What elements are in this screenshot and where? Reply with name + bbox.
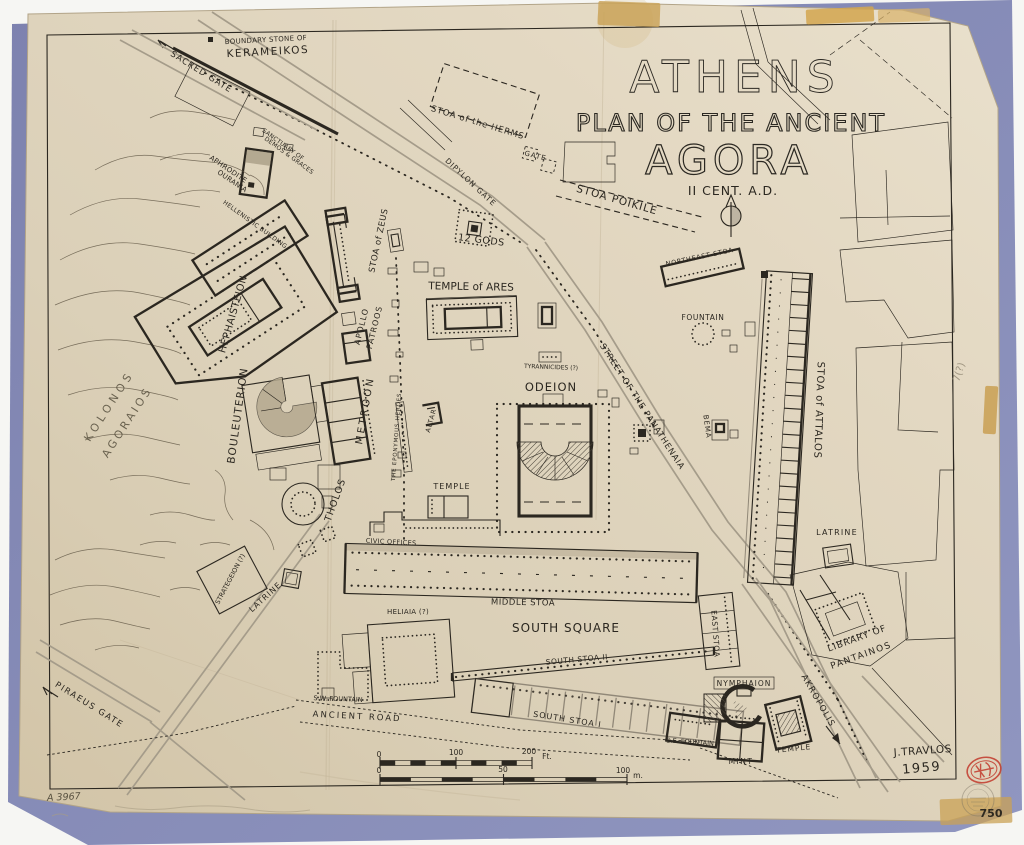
scale-feet-200: 200 [522,747,537,756]
label-catalog-number: A 3967 [46,791,81,804]
scale-feet-0: 0 [377,750,382,759]
scale-feet-100: 100 [449,748,464,757]
label-middle-stoa: MIDDLE STOA [491,597,555,608]
scale-m-100: 100 [616,766,631,775]
map-canvas: ATHENS PLAN OF THE ANCIENT AGORA II CENT… [0,0,1024,845]
label-latrine-ne: LATRINE [816,528,858,537]
tape-top-right-2 [878,8,930,23]
label-odeion: ODEION [525,380,577,394]
map-title-agora: AGORA [645,138,813,184]
label-nymphaion: NYMPHAION [717,679,772,688]
scanned-map-page: ATHENS PLAN OF THE ANCIENT AGORA II CENT… [0,0,1024,845]
label-temple-central: TEMPLE [432,482,470,491]
scale-m-0: 0 [377,766,382,775]
label-plate-number: 750 [980,807,1003,820]
label-mint: MINT [729,757,754,766]
map-subtitle-line: PLAN OF THE ANCIENT [576,109,886,137]
scale-m-50: 50 [498,765,508,774]
tape-top-center [598,1,661,27]
scale-m-unit: m. [633,771,643,780]
label-temple-ares: TEMPLE of ARES [427,280,514,294]
label-heliaia: HELIAIA (?) [387,608,429,616]
map-title: ATHENS [629,52,840,103]
scale-feet-unit: Ft. [542,752,552,761]
label-south-square: SOUTH SQUARE [512,621,620,635]
label-fountain-north: FOUNTAIN [681,313,724,322]
map-period: II CENT. A.D. [688,183,778,198]
tape-right-edge [983,386,998,435]
